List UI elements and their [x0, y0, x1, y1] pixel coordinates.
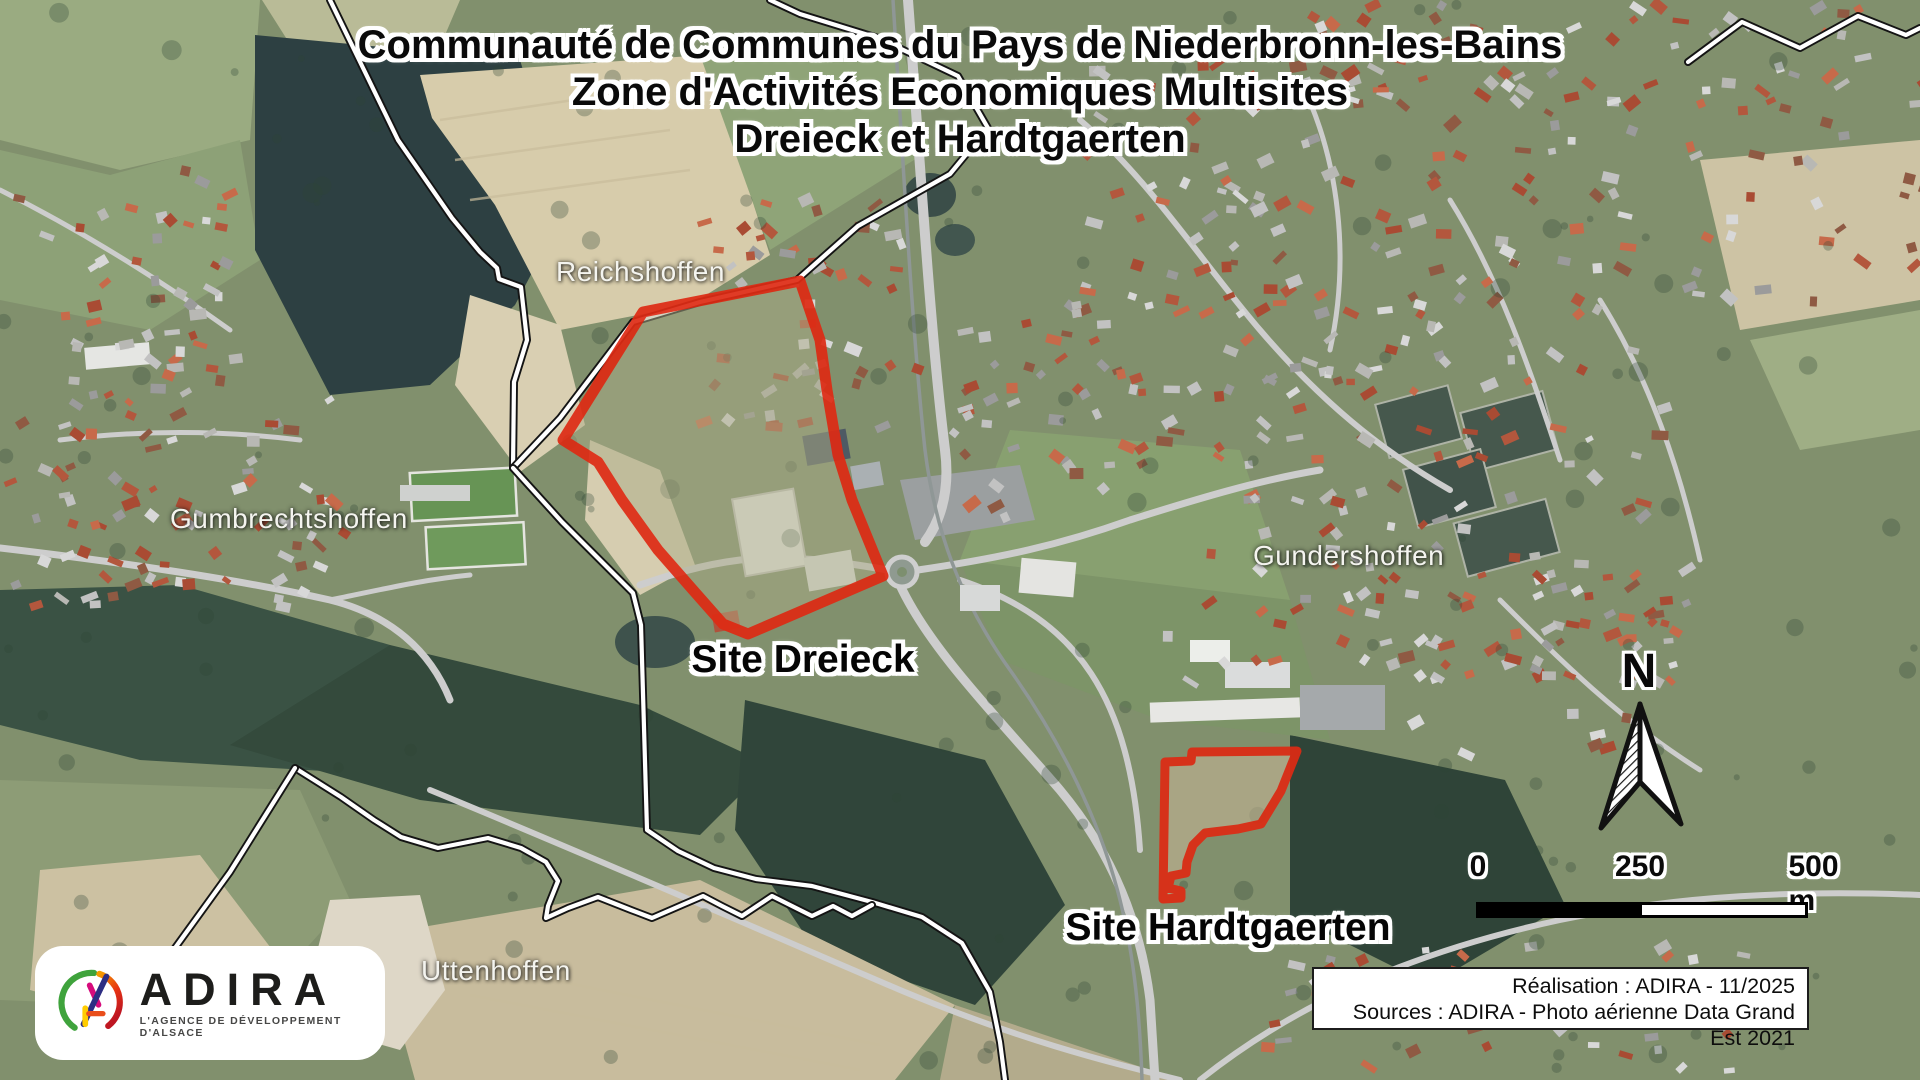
map-title-line2: Zone d'Activités Economiques Multisites — [0, 69, 1920, 116]
map-title: Communauté de Communes du Pays de Nieder… — [0, 22, 1920, 163]
town-label-reichshoffen: Reichshoffen — [556, 256, 725, 288]
adira-brand: ADIRA L'AGENCE DE DÉVELOPPEMENT D'ALSACE — [140, 967, 367, 1039]
scale-bar-graphic — [1476, 902, 1808, 918]
credits-sources: Sources : ADIRA - Photo aérienne Data Gr… — [1326, 999, 1795, 1051]
town-label-gundershoffen: Gundershoffen — [1253, 540, 1444, 572]
town-label-uttenhoffen: Uttenhoffen — [421, 955, 571, 987]
north-label: N — [1622, 644, 1657, 699]
town-label-gumbrechtshoffen: Gumbrechtshoffen — [170, 503, 408, 535]
scale-bar: 0 250 500 m — [1474, 850, 1874, 922]
site-label-dreieck: Site Dreieck — [691, 638, 914, 682]
scale-tick-start: 0 — [1470, 850, 1487, 884]
adira-brand-name: ADIRA — [140, 967, 367, 1013]
map-title-line3: Dreieck et Hardtgaerten — [0, 116, 1920, 163]
credits-box: Réalisation : ADIRA - 11/2025 Sources : … — [1312, 967, 1809, 1030]
adira-logo-mark-icon — [57, 961, 128, 1045]
north-arrow-icon — [1593, 700, 1687, 836]
scale-tick-mid: 250 — [1615, 850, 1665, 884]
site-label-hardtgaerten: Site Hardtgaerten — [1065, 906, 1390, 950]
map-title-line1: Communauté de Communes du Pays de Nieder… — [0, 22, 1920, 69]
adira-logo: ADIRA L'AGENCE DE DÉVELOPPEMENT D'ALSACE — [35, 946, 385, 1060]
credits-realisation: Réalisation : ADIRA - 11/2025 — [1326, 973, 1795, 999]
aerial-map: Communauté de Communes du Pays de Nieder… — [0, 0, 1920, 1080]
adira-brand-tagline: L'AGENCE DE DÉVELOPPEMENT D'ALSACE — [140, 1015, 367, 1039]
